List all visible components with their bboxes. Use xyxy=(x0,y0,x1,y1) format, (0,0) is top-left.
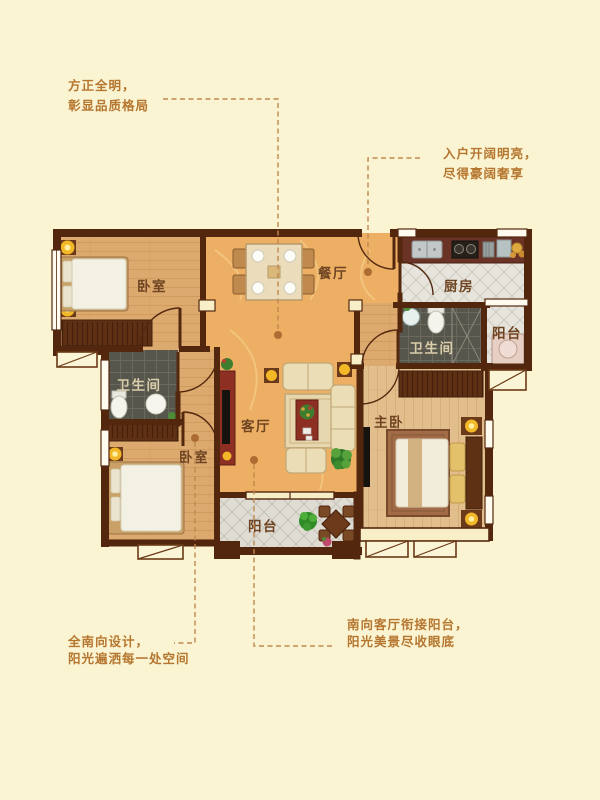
chair xyxy=(233,249,246,268)
headboard xyxy=(466,437,482,509)
window xyxy=(485,496,493,524)
lamp xyxy=(266,370,277,381)
plant xyxy=(168,412,176,420)
window xyxy=(52,250,61,330)
washbasin xyxy=(403,309,420,326)
note-line: 南向客厅衔接阳台， xyxy=(347,617,469,634)
window xyxy=(485,299,528,306)
wall-jamb xyxy=(349,300,362,311)
mattress xyxy=(72,259,126,309)
window xyxy=(497,229,527,237)
floorplan-page: 卧室 餐厅 厨房 卫生间 阳台 卫生间 客厅 卧室 主卧 阳台 方正全明， 彰显… xyxy=(0,0,600,800)
note-top-left: 方正全明， 彰显品质格局 xyxy=(68,76,149,116)
sofa-right xyxy=(331,385,355,451)
note-line: 彰显品质格局 xyxy=(68,96,149,116)
plate xyxy=(284,250,296,262)
pillow xyxy=(111,469,120,493)
master-bottom-wall xyxy=(360,528,489,541)
lamp xyxy=(223,452,232,461)
note-line: 尽得豪阔奢享 xyxy=(443,164,538,184)
wall-jamb xyxy=(351,354,363,365)
room-label-dining: 餐厅 xyxy=(317,265,348,282)
room-label-balcony-bottom: 阳台 xyxy=(248,518,278,535)
note-bottom-right: 南向客厅衔接阳台， 阳光美景尽收眼底 xyxy=(347,617,469,650)
kitchen-counter xyxy=(402,237,528,263)
room-label-bathroom-right: 卫生间 xyxy=(410,340,455,357)
window xyxy=(398,229,416,237)
leader-dot-living xyxy=(250,456,258,464)
note-line: 全南向设计， xyxy=(68,634,190,651)
blanket xyxy=(408,439,422,507)
window xyxy=(101,360,109,410)
plate xyxy=(252,250,264,262)
room-label-bedroom-top: 卧室 xyxy=(137,278,167,295)
pillow xyxy=(450,475,465,503)
chair xyxy=(301,249,314,268)
chair xyxy=(233,275,246,294)
cutting-board xyxy=(497,240,511,257)
pillow xyxy=(450,443,465,471)
room-label-living: 客厅 xyxy=(240,418,271,435)
ac-platform xyxy=(489,370,526,390)
toilet xyxy=(111,396,127,418)
room-label-bathroom-left: 卫生间 xyxy=(117,377,162,394)
room-label-bedroom-bottom: 卧室 xyxy=(179,449,209,466)
ac-platform xyxy=(414,541,456,557)
pillow xyxy=(111,497,120,521)
plate xyxy=(252,282,264,294)
pillow xyxy=(63,261,72,282)
note-line: 方正全明， xyxy=(68,76,149,96)
window xyxy=(101,430,109,466)
room-label-balcony-right: 阳台 xyxy=(492,325,522,342)
chair xyxy=(343,530,354,541)
note-bottom-left: 全南向设计， 阳光遍洒每一处空间 xyxy=(68,634,190,667)
sink-bowl xyxy=(146,394,166,414)
leader-dot-bedroom xyxy=(191,434,199,442)
potted-plant xyxy=(331,448,352,470)
dish-rack xyxy=(483,242,494,257)
tv xyxy=(222,390,230,444)
plate xyxy=(284,282,296,294)
room-label-master-bedroom: 主卧 xyxy=(374,414,404,431)
leader-dot-dining xyxy=(274,331,282,339)
bedroom-bottom-furniture xyxy=(107,424,184,534)
pillow xyxy=(63,286,72,307)
chair xyxy=(343,506,354,517)
ac-platform xyxy=(366,541,408,557)
chair xyxy=(319,506,330,517)
flower-arrangement xyxy=(300,405,315,420)
leader-dot-entry xyxy=(364,268,372,276)
chair xyxy=(301,275,314,294)
ac-platform xyxy=(138,545,183,559)
ac-platform xyxy=(57,352,97,367)
note-line: 入户开阔明亮， xyxy=(443,144,538,164)
note-line: 阳光美景尽收眼底 xyxy=(347,634,469,651)
note-top-right: 入户开阔明亮， 尽得豪阔奢享 xyxy=(443,144,538,184)
room-label-kitchen: 厨房 xyxy=(444,278,474,295)
lamp xyxy=(339,364,350,375)
floor-plan: 卧室 餐厅 厨房 卫生间 阳台 卫生间 客厅 卧室 主卧 阳台 xyxy=(0,0,600,800)
window xyxy=(485,420,493,448)
note-line: 阳光遍洒每一处空间 xyxy=(68,651,190,668)
wall-jamb xyxy=(199,300,215,311)
mattress xyxy=(121,465,181,531)
toilet xyxy=(428,311,444,333)
